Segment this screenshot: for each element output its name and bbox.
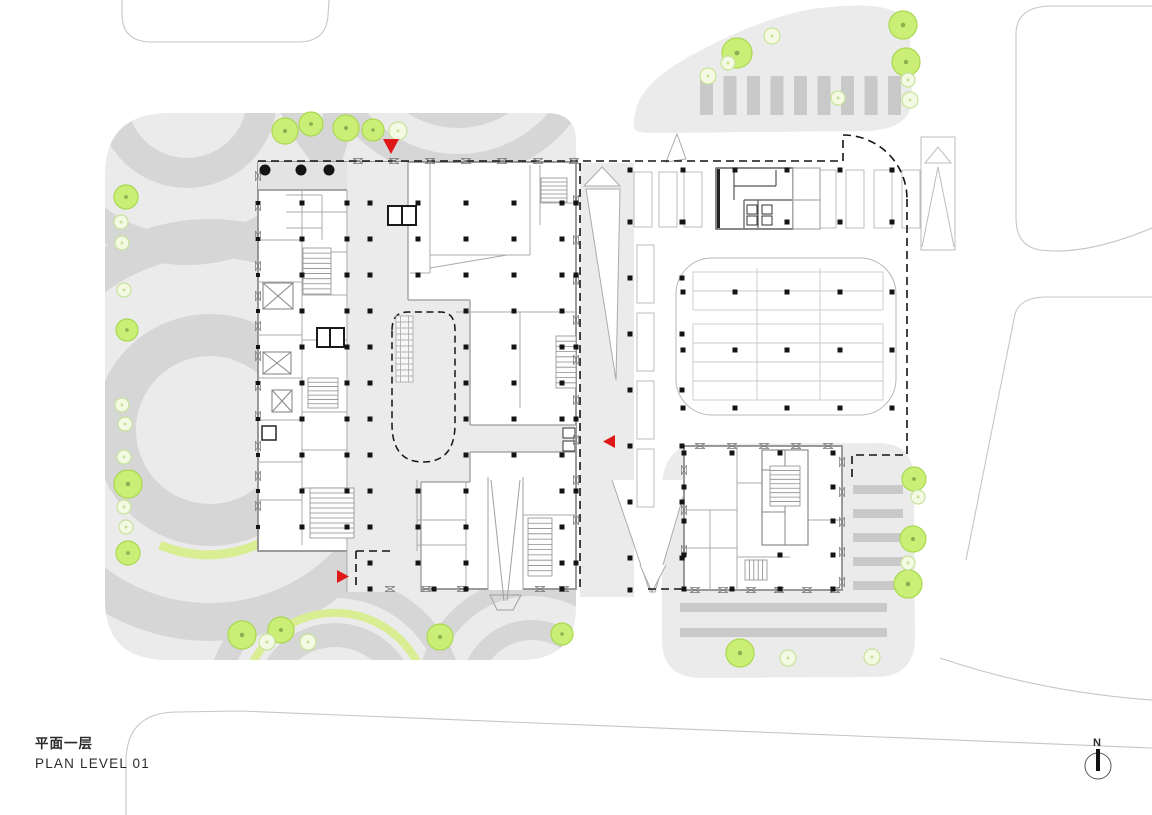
- tree: [333, 115, 359, 141]
- north-lot-stalls-west: [634, 172, 702, 227]
- road-bottom: [126, 711, 1152, 815]
- tree: [902, 92, 918, 108]
- tree: [114, 185, 138, 209]
- north-arrow: N: [1085, 737, 1111, 779]
- stair: [310, 488, 354, 538]
- canopy-parking: [676, 258, 896, 415]
- north-annex-building: [716, 168, 820, 229]
- escalator: [396, 316, 413, 382]
- tree: [427, 624, 453, 650]
- tree: [700, 68, 716, 84]
- tree: [892, 48, 920, 76]
- ramp-east: [921, 137, 955, 250]
- ramp-northeast: [666, 134, 686, 162]
- plan-title-en: PLAN LEVEL 01: [35, 756, 150, 771]
- road-bottom-right-curve: [940, 658, 1152, 700]
- tree: [901, 556, 915, 570]
- tree: [900, 526, 926, 552]
- driveway-stalls: [637, 245, 654, 507]
- stair: [528, 518, 552, 576]
- tree: [116, 541, 140, 565]
- tree: [116, 319, 138, 341]
- tree: [119, 520, 133, 534]
- tree: [117, 283, 131, 297]
- tree: [389, 122, 407, 140]
- north-lot-stalls-east: [818, 170, 920, 228]
- tree: [300, 634, 316, 650]
- tree: [118, 417, 132, 431]
- plan-canvas: 平面一层 PLAN LEVEL 01 N: [0, 0, 1152, 815]
- stair: [770, 466, 800, 506]
- north-label: N: [1093, 737, 1101, 749]
- tree: [115, 398, 129, 412]
- round-column: [260, 165, 271, 176]
- round-column: [296, 165, 307, 176]
- tree: [117, 500, 131, 514]
- tree: [911, 490, 925, 504]
- tree: [115, 236, 129, 250]
- tree: [362, 119, 384, 141]
- canopy-stall-rows: [693, 268, 883, 400]
- tree: [114, 470, 142, 498]
- round-column: [324, 165, 335, 176]
- road-block-right-upper: [1016, 6, 1152, 251]
- tree: [889, 11, 917, 39]
- tree: [902, 467, 926, 491]
- tree: [551, 623, 573, 645]
- tree: [259, 634, 275, 650]
- stair: [745, 560, 767, 580]
- tree: [117, 450, 131, 464]
- plan-title-cn: 平面一层: [35, 736, 93, 751]
- road-block-right-lower: [966, 297, 1152, 560]
- tree: [272, 118, 298, 144]
- tree: [114, 215, 128, 229]
- tree: [726, 639, 754, 667]
- tree: [764, 28, 780, 44]
- stair: [541, 178, 567, 202]
- tree: [780, 650, 796, 666]
- tree: [228, 621, 256, 649]
- stair: [303, 248, 331, 294]
- floor-plan-page: 平面一层 PLAN LEVEL 01 N: [0, 0, 1152, 815]
- tree: [864, 649, 880, 665]
- north-lot-bays: [700, 76, 901, 115]
- tree: [299, 112, 323, 136]
- tree: [721, 56, 735, 70]
- tree: [831, 91, 845, 105]
- stair: [556, 336, 576, 388]
- road-top-left: [122, 0, 329, 42]
- tree: [901, 73, 915, 87]
- stair: [308, 378, 338, 408]
- tree: [894, 570, 922, 598]
